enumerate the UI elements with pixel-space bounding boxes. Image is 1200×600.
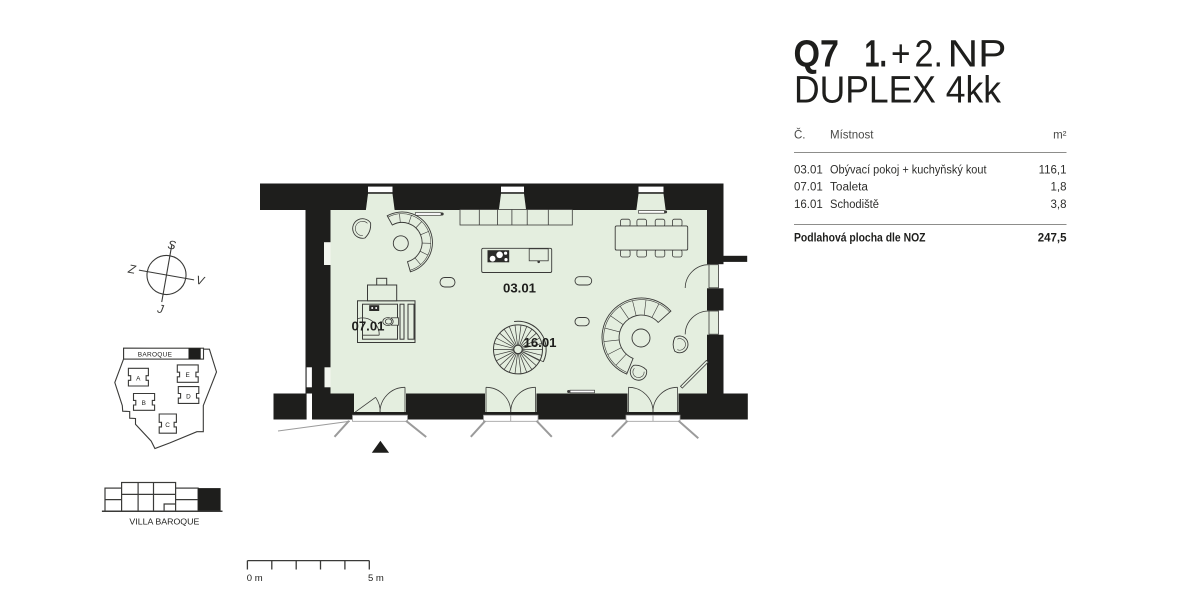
svg-text:BAROQUE: BAROQUE [138,352,173,359]
svg-text:5 m: 5 m [368,573,384,584]
svg-text:Z: Z [126,262,137,277]
svg-text:V: V [195,273,206,288]
svg-text:07.01Toaleta: 07.01Toaleta [794,182,869,194]
svg-text:16.01: 16.01 [524,335,557,350]
svg-text:A: A [136,376,141,383]
svg-text:1,8: 1,8 [1051,182,1067,194]
svg-text:03.01: 03.01 [503,281,536,296]
svg-text:16.01Schodiště: 16.01Schodiště [794,199,879,211]
svg-text:D: D [186,394,191,401]
svg-text:S: S [167,237,177,252]
svg-text:03.01Obývací pokoj + kuchyňský: 03.01Obývací pokoj + kuchyňský kout [794,165,987,177]
svg-text:3,8: 3,8 [1051,199,1067,211]
svg-text:B: B [142,400,146,407]
svg-text:m²: m² [1053,130,1067,142]
svg-text:Podlahová plocha dle NOZ: Podlahová plocha dle NOZ [794,233,926,245]
svg-text:07.01: 07.01 [352,319,385,334]
svg-text:247,5: 247,5 [1038,233,1067,245]
svg-text:C: C [165,422,170,429]
svg-text:DUPLEX 4kk: DUPLEX 4kk [794,70,1002,112]
svg-text:VILLA BAROQUE: VILLA BAROQUE [129,517,199,527]
svg-text:0 m: 0 m [247,573,263,584]
svg-text:J: J [155,301,165,316]
svg-text:116,1: 116,1 [1039,165,1067,177]
svg-text:E: E [185,372,189,379]
svg-text:Č.Místnost: Č.Místnost [794,129,874,142]
